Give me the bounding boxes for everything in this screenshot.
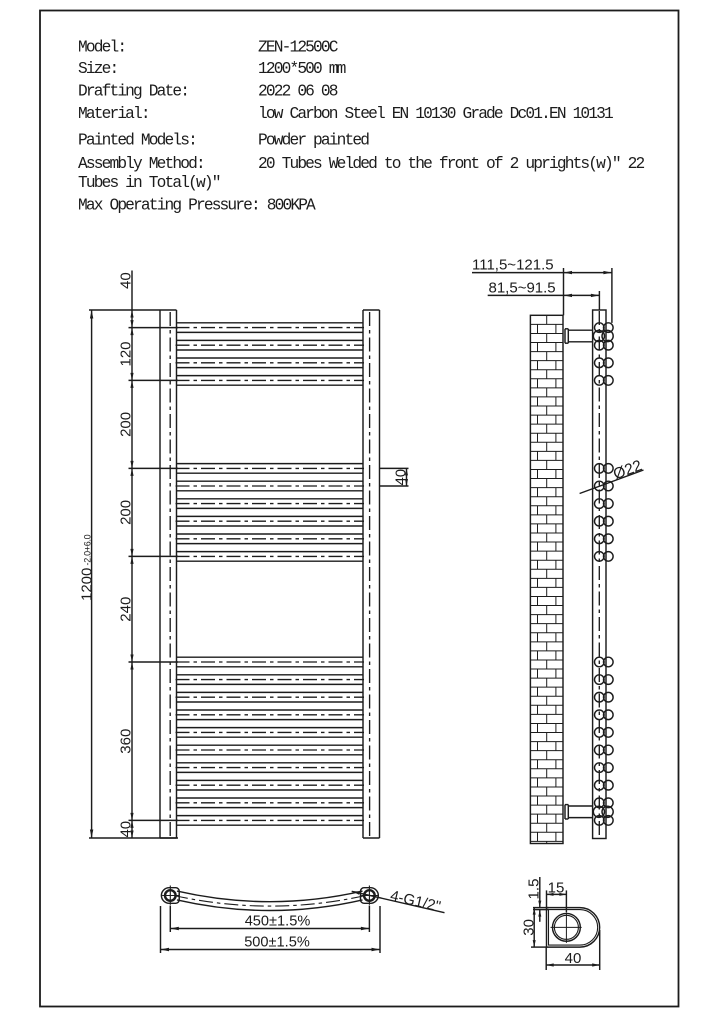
svg-text:Model:: Model: [78,39,125,57]
svg-text:2022 06 08: 2022 06 08 [258,83,338,101]
svg-text:40: 40 [565,950,582,967]
svg-text:Material:: Material: [78,105,149,123]
svg-text:15: 15 [548,879,565,896]
svg-text:1200: 1200 [78,568,95,601]
svg-text:Max Operating Pressure: 800KPA: Max Operating Pressure: 800KPA [78,197,316,215]
svg-text:360: 360 [118,729,135,754]
svg-text:40: 40 [118,272,135,289]
svg-text:Size:: Size: [78,60,117,78]
svg-text:Painted Models:: Painted Models: [78,132,196,150]
svg-text:240: 240 [118,597,135,622]
svg-text:1.5: 1.5 [526,879,543,900]
svg-text:40: 40 [118,821,135,838]
svg-text:-2.0+6.0: -2.0+6.0 [83,534,93,565]
svg-text:Tubes in Total(w)″: Tubes in Total(w)″ [78,174,220,192]
svg-text:20 Tubes Welded to the front o: 20 Tubes Welded to the front of 2 uprigh… [258,155,644,173]
svg-text:40: 40 [393,469,410,486]
svg-text:Assembly Method:: Assembly Method: [78,155,204,173]
svg-text:1200*500 mm: 1200*500 mm [258,60,346,78]
svg-text:200: 200 [118,500,135,525]
svg-text:low Carbon Steel EN 10130 Gra: low Carbon Steel EN 10130 Grade Dc01.EN … [258,105,613,123]
svg-text:81,5~91.5: 81,5~91.5 [489,279,556,296]
svg-text:120: 120 [118,341,135,366]
svg-text:Powder painted: Powder painted [258,132,369,150]
svg-text:450±1.5%: 450±1.5% [245,913,311,929]
svg-text:200: 200 [118,412,135,437]
svg-text:111,5~121.5: 111,5~121.5 [472,257,554,274]
svg-text:30: 30 [520,919,537,936]
svg-text:500±1.5%: 500±1.5% [244,934,310,950]
svg-text:Drafting Date:: Drafting Date: [78,83,188,101]
svg-text:ZEN-12500C: ZEN-12500C [258,39,339,57]
